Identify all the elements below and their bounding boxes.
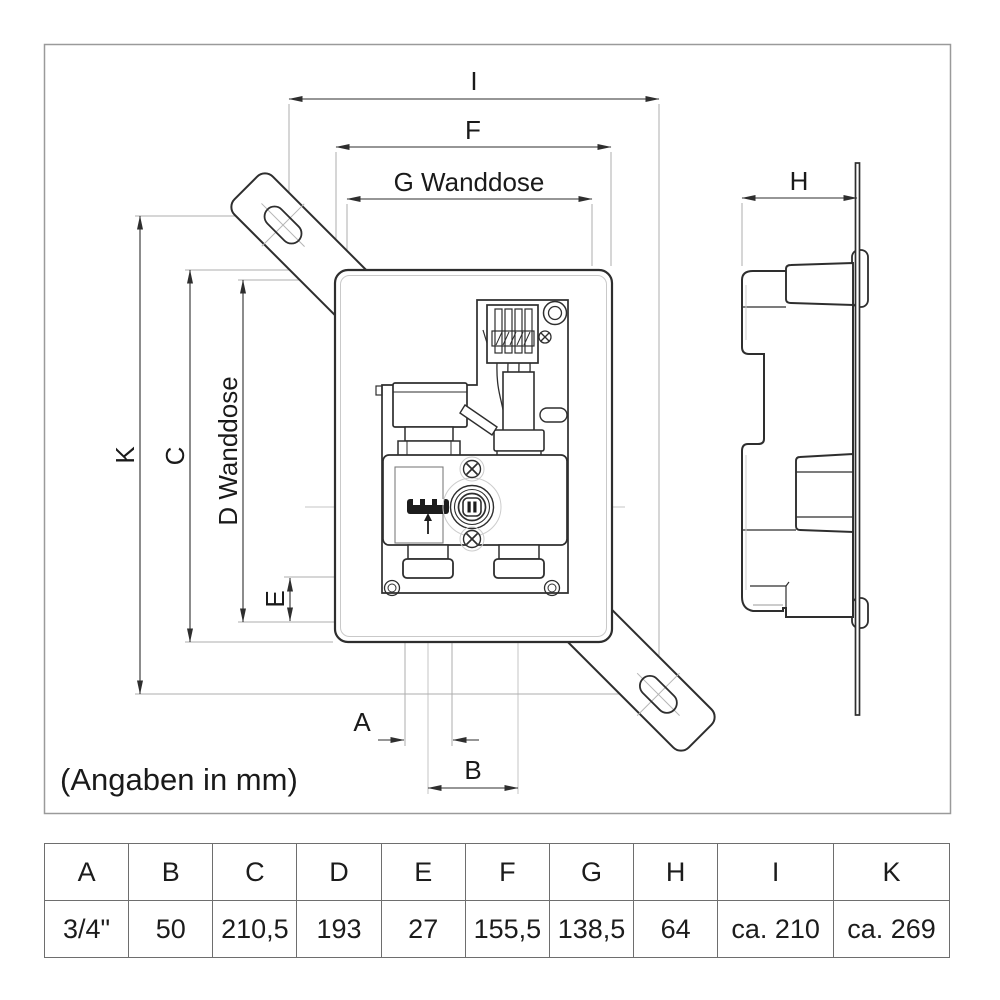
table-value-cell: 155,5 xyxy=(465,901,549,958)
side-view xyxy=(742,163,868,715)
wall-panel xyxy=(856,163,860,715)
table-value-cell: 64 xyxy=(634,901,718,958)
table-value-cell: 210,5 xyxy=(213,901,297,958)
actuator-block xyxy=(393,383,467,427)
dim-label-c: C xyxy=(160,447,190,466)
table-value-cell: ca. 210 xyxy=(718,901,834,958)
table-value-cell: ca. 269 xyxy=(834,901,950,958)
table-value-cell: 50 xyxy=(129,901,213,958)
table-header-cell: B xyxy=(129,844,213,901)
dim-label-h: H xyxy=(790,166,809,196)
pipe-connector-right xyxy=(494,545,544,578)
table-header-cell: A xyxy=(45,844,129,901)
dim-label-i: I xyxy=(470,66,477,96)
actuator-neck xyxy=(405,427,453,441)
technical-drawing-page: I F G Wanddose H K C D Wanddose E A B (A… xyxy=(0,0,1000,1000)
units-note: (Angaben in mm) xyxy=(60,762,298,798)
side-top-block xyxy=(786,263,853,305)
phillips-screw-top xyxy=(460,457,484,481)
solenoid-cartridge xyxy=(503,372,534,432)
cartridge-collar xyxy=(494,430,544,451)
side-profile-body xyxy=(742,271,853,617)
pipe-connector-left xyxy=(403,545,453,578)
dim-label-k: K xyxy=(110,446,140,464)
dim-label-a: A xyxy=(353,707,371,737)
table-header-row: A B C D E F G H I K xyxy=(45,844,950,901)
table-header-cell: F xyxy=(465,844,549,901)
table-value-cell: 27 xyxy=(381,901,465,958)
dim-label-e: E xyxy=(260,590,290,607)
table-header-cell: K xyxy=(834,844,950,901)
table-value-cell: 3/4" xyxy=(45,901,129,958)
dim-label-b: B xyxy=(464,755,481,785)
dim-label-d: D Wanddose xyxy=(213,376,243,525)
table-header-cell: E xyxy=(381,844,465,901)
technical-drawing: I F G Wanddose H K C D Wanddose E A B xyxy=(0,0,1000,830)
phillips-screw-bottom xyxy=(460,527,484,551)
table-header-cell: C xyxy=(213,844,297,901)
dim-label-f: F xyxy=(465,115,481,145)
dimension-table: A B C D E F G H I K 3/4" 50 210,5 193 27… xyxy=(44,843,950,958)
table-header-cell: G xyxy=(549,844,633,901)
table-value-cell: 193 xyxy=(297,901,381,958)
table-header-cell: D xyxy=(297,844,381,901)
table-value-cell: 138,5 xyxy=(549,901,633,958)
table-header-cell: I xyxy=(718,844,834,901)
dim-label-g: G Wanddose xyxy=(394,167,545,197)
table-header-cell: H xyxy=(634,844,718,901)
front-view xyxy=(225,167,722,758)
table-value-row: 3/4" 50 210,5 193 27 155,5 138,5 64 ca. … xyxy=(45,901,950,958)
side-middle-block xyxy=(796,454,853,532)
